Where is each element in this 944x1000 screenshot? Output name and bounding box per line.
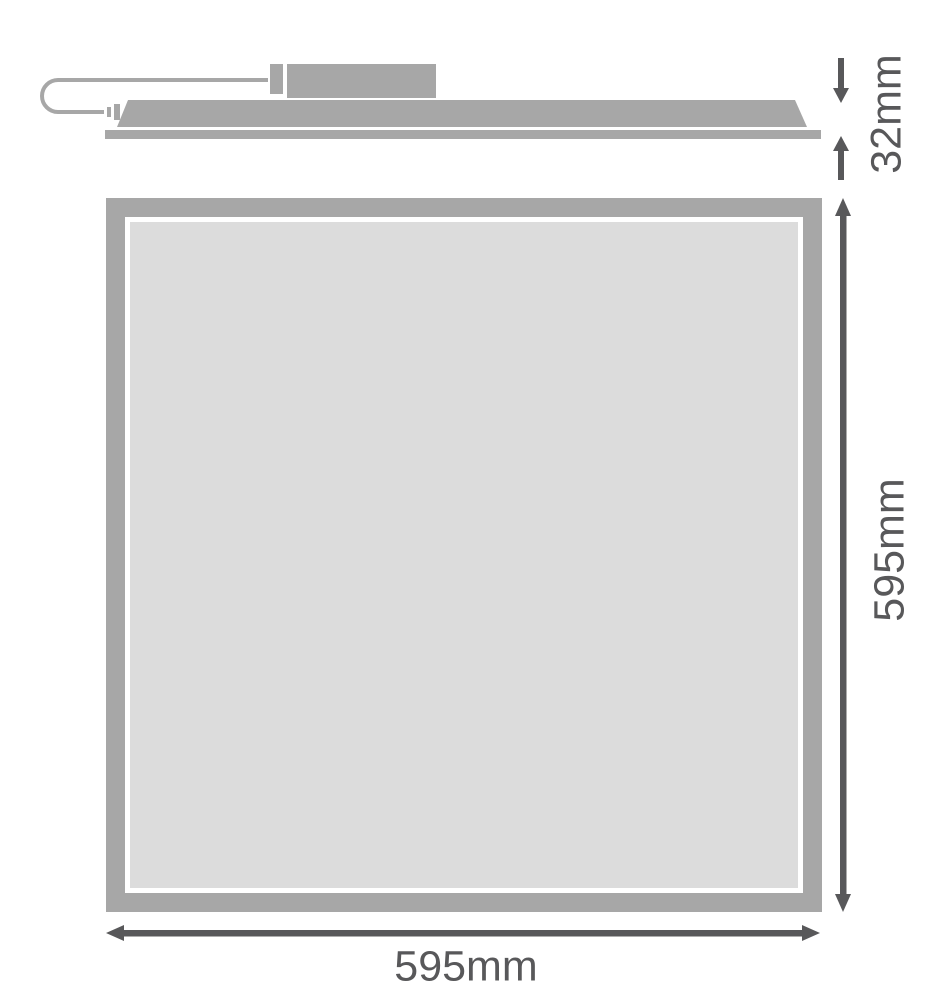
height-dimension-label: 595mm [869, 478, 912, 621]
dimension-drawing: 32mm 595mm 595mm [0, 0, 944, 1000]
dimension-lines [0, 0, 944, 1000]
width-dimension-label: 595mm [394, 946, 537, 989]
thickness-dimension-arrows [833, 58, 849, 180]
thickness-dimension-label: 32mm [866, 54, 909, 173]
height-dimension-line [835, 198, 851, 912]
width-dimension-line [106, 925, 820, 941]
